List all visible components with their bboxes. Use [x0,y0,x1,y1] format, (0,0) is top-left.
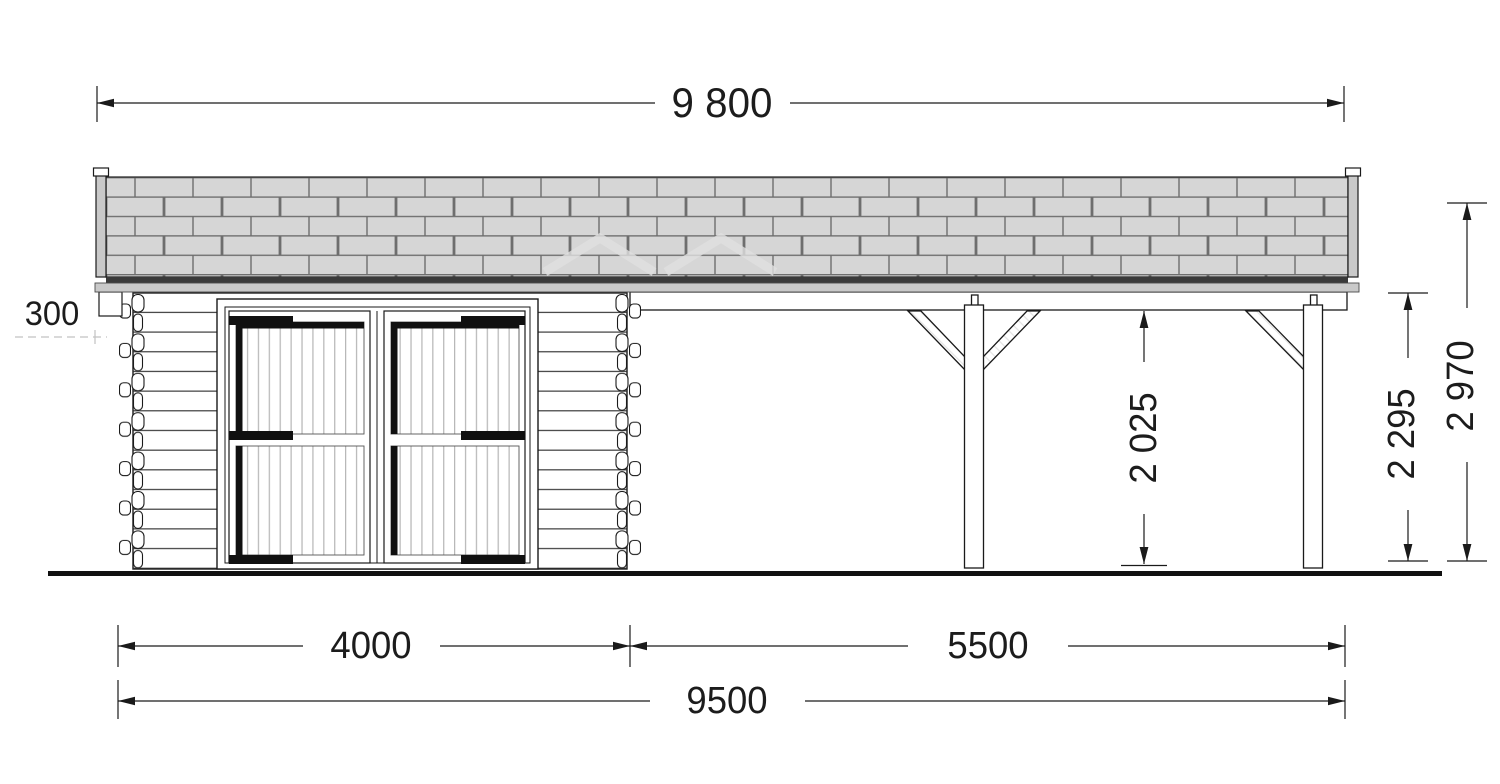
roof-fascia [95,283,1359,292]
roof-end-board-right [1348,175,1358,277]
carport-beam [630,292,1347,310]
brace-middle-left [908,311,965,370]
hinge-strap [461,555,525,564]
brace-right-post [1246,311,1304,370]
elevation-canvas: 9 800 300 4000 5500 9500 2 025 2 295 2 9… [0,0,1500,784]
dim-carport-width-label: 5500 [947,627,1028,665]
brace-middle-right [983,311,1040,370]
dim-overall-height-label: 2 970 [1442,340,1480,431]
roof-edge-band [106,277,1348,283]
eave-purlin-left [99,292,122,316]
post-middle [965,305,984,568]
dim-carport-clear-height-label: 2 025 [1125,392,1163,483]
dim-wall-height-label: 2 295 [1383,388,1421,479]
post-right [1304,305,1323,568]
roof-shingles [106,177,1348,277]
dim-garage-width-label: 4000 [330,627,411,665]
roof [94,168,1361,292]
roof-end-cap-left [94,168,109,176]
hinge-strap [461,431,525,440]
roof-end-cap-right [1346,168,1361,176]
hinge-strap [229,555,293,564]
dim-eave-overhang-label: 300 [25,297,79,331]
hinge-strap [229,431,293,440]
log-ends-left [119,303,131,561]
corner-joint-right [614,294,630,569]
corner-joint-left [130,294,146,569]
garage-door [217,299,538,569]
log-ends-right [629,303,641,561]
dim-total-width-label: 9500 [686,682,767,720]
roof-end-board-left [96,175,106,277]
dim-total-roof-width-label: 9 800 [672,82,773,124]
